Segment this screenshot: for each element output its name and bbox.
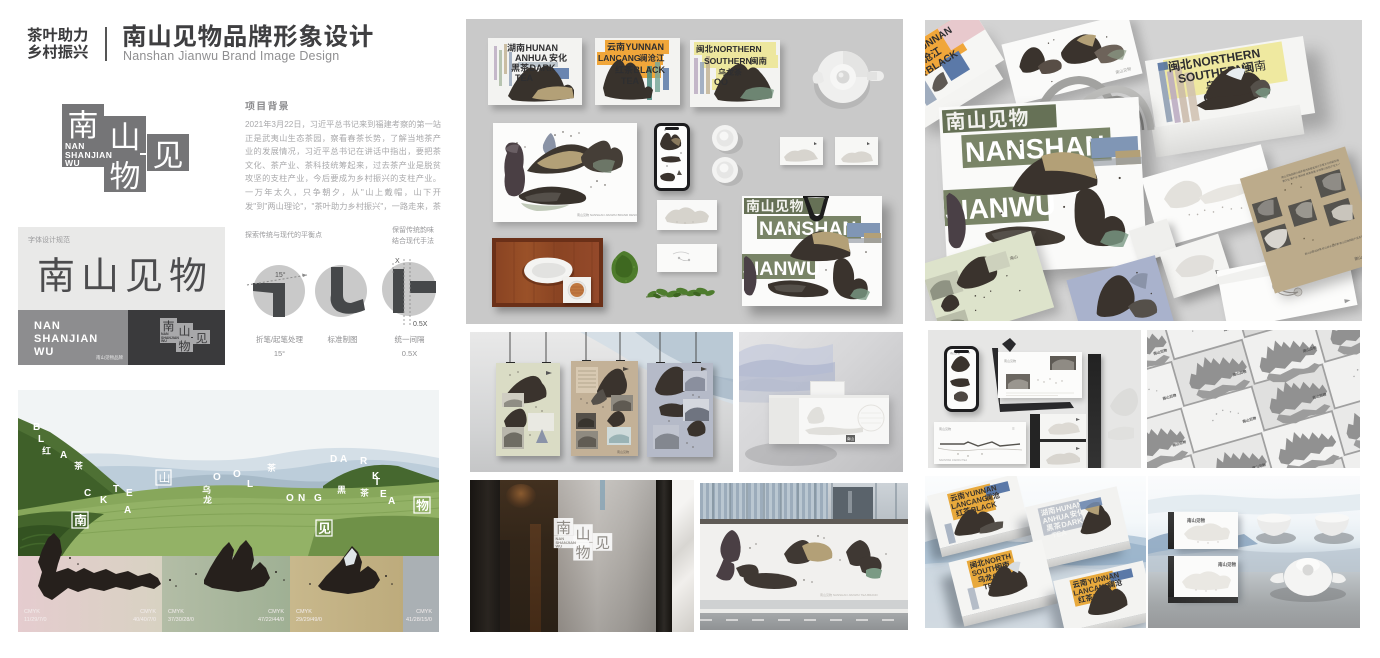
svg-text:SOUTHERN: SOUTHERN (704, 56, 752, 66)
svg-text:ANHUA: ANHUA (515, 53, 548, 63)
svg-text:K: K (100, 495, 108, 506)
svg-text:南山: 南山 (1009, 253, 1018, 261)
svg-text:BLACK: BLACK (634, 65, 666, 75)
svg-text:南山见物: 南山见物 (1353, 251, 1362, 261)
svg-text:R: R (360, 456, 368, 467)
svg-text:15°: 15° (275, 271, 286, 279)
svg-text:南山见物: 南山见物 (1218, 561, 1236, 568)
svg-text:T: T (374, 477, 380, 488)
svg-text:T: T (113, 484, 119, 495)
svg-text:南山见物 NANSHAN JIANWU BRAND DESI: 南山见物 NANSHAN JIANWU BRAND DESIGN (577, 212, 637, 217)
svg-text:A: A (340, 454, 347, 465)
svg-text:南山见物: 南山见物 (1004, 358, 1016, 363)
svg-text:DARK: DARK (530, 63, 556, 73)
svg-text:南山见物: 南山见物 (1187, 517, 1205, 524)
svg-text:O: O (286, 493, 294, 504)
svg-text:HUNAN: HUNAN (526, 43, 559, 53)
svg-text:G: G (314, 493, 322, 504)
svg-text:高山云雾出好茶 好山好水出好茶 南山见物四款产品系列: 高山云雾出好茶 好山好水出好茶 南山见物四款产品系列 (1304, 234, 1362, 256)
svg-text:LANCANG: LANCANG (598, 53, 641, 63)
svg-text:TEA: TEA (515, 73, 534, 83)
svg-text:X: X (395, 258, 400, 265)
svg-text:WU: WU (556, 544, 563, 549)
svg-text:TEA: TEA (621, 76, 640, 86)
svg-text:D: D (330, 454, 337, 465)
svg-text:E: E (380, 489, 387, 500)
svg-text:☰: ☰ (1012, 427, 1015, 431)
svg-text:E: E (126, 488, 133, 499)
svg-text:南山见物: 南山见物 (617, 449, 629, 454)
svg-text:B: B (33, 422, 40, 433)
svg-text:NORTHERN: NORTHERN (714, 44, 762, 54)
svg-text:TEA: TEA (1051, 528, 1068, 540)
svg-text:O: O (233, 469, 241, 480)
svg-text:L: L (247, 479, 253, 490)
svg-text:A: A (60, 450, 67, 461)
svg-text:南山见物 NANSHAN JIANWU TEA BRAND: 南山见物 NANSHAN JIANWU TEA BRAND (820, 592, 878, 597)
svg-text:YUNNAN: YUNNAN (626, 42, 665, 52)
svg-text:NANSHAN JIANWU TEA: NANSHAN JIANWU TEA (939, 459, 967, 462)
svg-text:0.5X: 0.5X (413, 321, 428, 328)
svg-text:OO: OO (714, 77, 728, 87)
svg-text:A: A (124, 505, 131, 516)
svg-text:N: N (298, 493, 305, 504)
svg-text:南山见物: 南山见物 (939, 426, 951, 431)
svg-text:O: O (213, 472, 221, 483)
svg-text:A: A (388, 496, 395, 507)
svg-text:L: L (38, 434, 44, 445)
svg-text:C: C (84, 488, 91, 499)
svg-text:南山: 南山 (847, 436, 855, 441)
